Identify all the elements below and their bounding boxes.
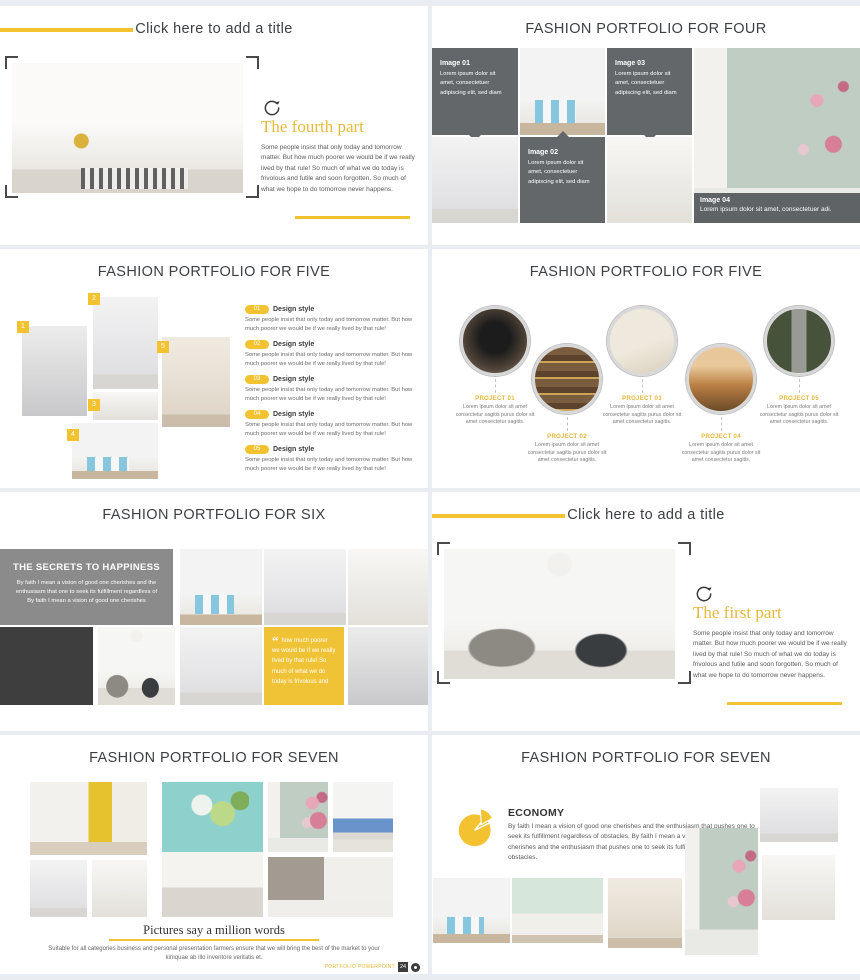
photo-grid-4: [98, 627, 175, 705]
photo-collage-1: [22, 326, 87, 416]
item-label: Design style: [273, 376, 314, 383]
photo-collage-5: [162, 337, 230, 427]
photo-grid-6: [348, 627, 428, 705]
image-caption-card: Image 03 Lorem ipsum dolor sit amet, con…: [607, 48, 692, 135]
frame-bracket-icon: [437, 542, 450, 555]
item-number-pill: 02: [245, 340, 269, 349]
image-label: Image 04: [700, 197, 854, 204]
bottom-accent-line: [295, 216, 410, 219]
quote-mark-icon: “: [272, 636, 279, 645]
photo-strip-3: [608, 878, 682, 948]
photo-collage-2: [93, 297, 158, 389]
connector-line: [495, 379, 496, 393]
photo-circle-street: [686, 344, 756, 414]
design-style-item: 04Design style Some people insist that o…: [245, 410, 417, 438]
slide-footer: PORTFOLIO POWERPOINT 24: [325, 962, 420, 972]
photo-teal-room: [162, 782, 263, 917]
photo-bedroom-posters: [432, 137, 518, 223]
pie-chart-icon: [455, 805, 500, 850]
photo-grid-5: [180, 627, 262, 705]
photo-living-room: [444, 549, 675, 679]
slide-portfolio-five-circles[interactable]: FASHION PORTFOLIO FOR FIVE PROJECT 01 Lo…: [432, 249, 860, 488]
section-body-text: Some people insist that only today and t…: [693, 629, 853, 681]
slide-portfolio-seven-economy[interactable]: FASHION PORTFOLIO FOR SEVEN ECONOMY By f…: [432, 735, 860, 974]
photo-living-room: [12, 63, 243, 193]
item-text: Some people insist that only today and t…: [245, 386, 417, 403]
secrets-panel: THE SECRETS TO HAPPINESS By faith I mean…: [0, 549, 173, 625]
item-number-pill: 04: [245, 410, 269, 419]
image-label: Image 01: [440, 60, 510, 67]
project-caption: PROJECT 04 Lorem ipsum dolor sit amet co…: [680, 434, 762, 465]
panel-heading: THE SECRETS TO HAPPINESS: [8, 562, 165, 573]
panel-text: By faith I mean a vision of good one che…: [12, 579, 161, 606]
project-caption: PROJECT 05 Lorem ipsum dolor sit amet co…: [758, 396, 840, 427]
photo-sage-decor: [268, 782, 328, 852]
item-label: Design style: [273, 306, 314, 313]
caption-underline: [109, 939, 319, 941]
slide-title: FASHION PORTFOLIO FOR FOUR: [432, 21, 860, 37]
number-tag: 2: [88, 293, 100, 305]
photo-gray-bedroom: [268, 857, 393, 917]
item-text: Some people insist that only today and t…: [245, 456, 417, 473]
image-caption-text: Lorem ipsum dolor sit amet, consectetuer…: [528, 159, 597, 187]
project-text: Lorem ipsum dolor sit amet consectetur s…: [680, 442, 762, 465]
project-text: Lorem ipsum dolor sit amet consectetur s…: [601, 404, 683, 427]
image-caption-overlay: Image 04 Lorem ipsum dolor sit amet, con…: [694, 193, 860, 223]
project-label: PROJECT 03: [601, 396, 683, 402]
photo-circle-camera: [460, 306, 530, 376]
project-label: PROJECT 05: [758, 396, 840, 402]
image-caption-card: Image 01 Lorem ipsum dolor sit amet, con…: [432, 48, 518, 135]
photo-blue-bed: [333, 782, 393, 852]
quote-box: “ how much poorer we would be if we real…: [264, 627, 344, 705]
slide-portfolio-seven-collage[interactable]: FASHION PORTFOLIO FOR SEVEN Pictures say…: [0, 735, 428, 974]
design-style-item: 05Design style Some people insist that o…: [245, 445, 417, 473]
project-label: PROJECT 01: [454, 396, 536, 402]
section-body-text: Some people insist that only today and t…: [261, 143, 421, 195]
design-style-item: 02Design style Some people insist that o…: [245, 340, 417, 368]
slide-portfolio-five-list[interactable]: FASHION PORTFOLIO FOR FIVE 1 2 3 4 5 01D…: [0, 249, 428, 488]
photo-strip-2: [512, 878, 603, 943]
caption-text: Suitable for all categories business and…: [40, 945, 388, 964]
photo-white-bedroom: [607, 137, 692, 223]
item-label: Design style: [273, 446, 314, 453]
image-caption-text: Lorem ipsum dolor sit amet, consectetuer…: [700, 206, 854, 213]
rotate-arrow-icon: [262, 98, 282, 118]
photo-yellow-hall: [30, 782, 147, 855]
slide-title: Click here to add a title: [432, 507, 860, 523]
frame-bracket-icon: [246, 56, 259, 69]
quote-text: how much poorer we would be if we really…: [272, 636, 336, 687]
frame-bracket-icon: [678, 542, 691, 555]
photo-circle-stairs: [532, 344, 602, 414]
image-caption-card: Image 02 Lorem ipsum dolor sit amet, con…: [520, 137, 605, 223]
photo-kids-room: [520, 48, 605, 135]
image-caption-text: Lorem ipsum dolor sit amet, consectetuer…: [440, 70, 510, 98]
connector-line: [642, 379, 643, 393]
design-style-item: 03Design style Some people insist that o…: [245, 375, 417, 403]
number-tag: 3: [88, 399, 100, 411]
footer-circle-icon: [411, 963, 420, 972]
slide-preview-grid: Click here to add a title The fourth par…: [0, 6, 860, 974]
slide-title: FASHION PORTFOLIO FOR SEVEN: [432, 750, 860, 766]
item-number-pill: 01: [245, 305, 269, 314]
item-text: Some people insist that only today and t…: [245, 351, 417, 368]
project-caption: PROJECT 03 Lorem ipsum dolor sit amet co…: [601, 396, 683, 427]
photo-circle-forest: [764, 306, 834, 376]
item-number-pill: 03: [245, 375, 269, 384]
project-caption: PROJECT 01 Lorem ipsum dolor sit amet co…: [454, 396, 536, 427]
item-text: Some people insist that only today and t…: [245, 316, 417, 333]
photo-collage-4: [72, 423, 158, 479]
slide-title: FASHION PORTFOLIO FOR SIX: [0, 507, 428, 523]
slide-title: FASHION PORTFOLIO FOR FIVE: [432, 264, 860, 280]
rotate-arrow-icon: [694, 584, 714, 604]
slide-title: FASHION PORTFOLIO FOR SEVEN: [0, 750, 428, 766]
photo-collage-3: [93, 392, 158, 420]
connector-line: [799, 379, 800, 393]
slide-section-one-title[interactable]: Click here to add a title The first part…: [432, 492, 860, 731]
item-label: Design style: [273, 411, 314, 418]
photo-right-lower: [762, 855, 835, 920]
project-label: PROJECT 04: [680, 434, 762, 440]
frame-bracket-icon: [246, 185, 259, 198]
project-caption: PROJECT 02 Lorem ipsum dolor sit amet co…: [526, 434, 608, 465]
caption-heading: Pictures say a million words: [0, 923, 428, 938]
design-style-item: 01Design style Some people insist that o…: [245, 305, 417, 333]
slide-section-four-title[interactable]: Click here to add a title The fourth par…: [0, 6, 428, 245]
slide-portfolio-four[interactable]: FASHION PORTFOLIO FOR FOUR Image 01 Lore…: [432, 6, 860, 245]
slide-title: Click here to add a title: [0, 21, 428, 37]
frame-bracket-icon: [5, 185, 18, 198]
item-number-pill: 05: [245, 445, 269, 454]
item-text: Some people insist that only today and t…: [245, 421, 417, 438]
photo-circle-paper: [607, 306, 677, 376]
number-tag: 4: [67, 429, 79, 441]
section-heading: The fourth part: [261, 117, 364, 137]
page-number-badge: 24: [398, 962, 408, 972]
image-label: Image 02: [528, 149, 597, 156]
item-label: Design style: [273, 341, 314, 348]
frame-bracket-icon: [5, 56, 18, 69]
footer-label: PORTFOLIO POWERPOINT: [325, 964, 395, 970]
photo-grid-3: [348, 549, 428, 625]
bottom-accent-line: [727, 702, 842, 705]
photo-top-right: [760, 788, 838, 842]
photo-white-lounge: [30, 860, 87, 917]
frame-bracket-icon: [678, 671, 691, 684]
project-text: Lorem ipsum dolor sit amet consectetur s…: [758, 404, 840, 427]
slide-title: FASHION PORTFOLIO FOR FIVE: [0, 264, 428, 280]
photo-strip-1: [433, 878, 510, 943]
image-label: Image 03: [615, 60, 684, 67]
photo-grid-1: [180, 549, 262, 625]
photo-grid-2: [264, 549, 346, 625]
dark-filler-box: [0, 627, 93, 705]
project-text: Lorem ipsum dolor sit amet consectetur s…: [526, 442, 608, 465]
project-label: PROJECT 02: [526, 434, 608, 440]
number-tag: 1: [17, 321, 29, 333]
photo-tall-sage: [685, 828, 758, 955]
project-text: Lorem ipsum dolor sit amet consectetur s…: [454, 404, 536, 427]
section-heading: The first part: [693, 603, 782, 623]
connector-line: [567, 417, 568, 431]
slide-portfolio-six[interactable]: FASHION PORTFOLIO FOR SIX THE SECRETS TO…: [0, 492, 428, 731]
number-tag: 5: [157, 341, 169, 353]
economy-heading: ECONOMY: [508, 807, 564, 819]
image-caption-text: Lorem ipsum dolor sit amet, consectetuer…: [615, 70, 684, 98]
photo-white-sofa: [92, 860, 147, 917]
frame-bracket-icon: [437, 671, 450, 684]
connector-line: [721, 417, 722, 431]
